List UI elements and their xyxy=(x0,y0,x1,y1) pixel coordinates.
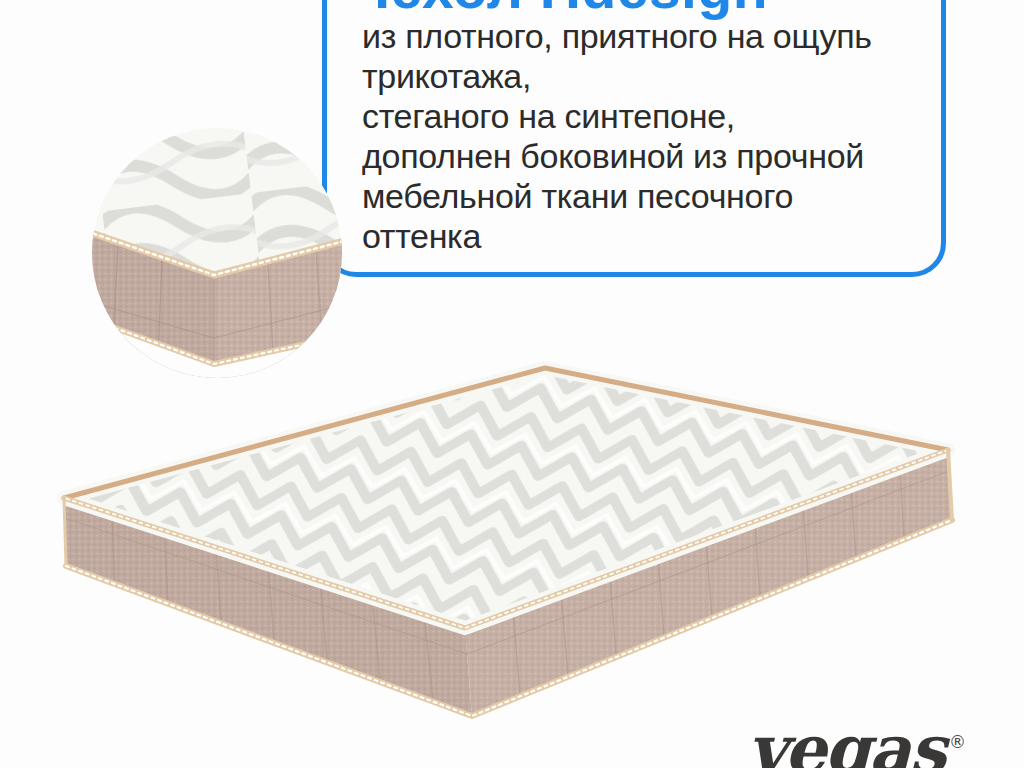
callout-text-line: стеганого на синтепоне, xyxy=(362,96,928,136)
mattress-corner-detail-image xyxy=(92,128,342,378)
callout-text-line: мебельной ткани песочного xyxy=(362,176,928,216)
mattress-side-fabric xyxy=(64,450,952,716)
mattress-piping xyxy=(64,368,952,716)
callout-text-line: дополнен боковиной из прочной xyxy=(362,136,928,176)
brand-logo: vegas ® xyxy=(748,716,944,768)
callout-text-line: оттенка xyxy=(362,216,928,256)
callout-text-line: трикотажа, xyxy=(362,56,928,96)
registered-trademark: ® xyxy=(949,732,966,752)
callout-text: из плотного, приятного на ощупь трикотаж… xyxy=(362,16,928,256)
callout-text-line: из плотного, приятного на ощупь xyxy=(362,16,928,56)
product-infographic: Чехол Hdesign из плотного, приятного на … xyxy=(0,0,1024,768)
brand-logo-text: vegas xyxy=(748,710,944,768)
mattress-top-quilt xyxy=(64,368,948,628)
callout-title: Чехол Hdesign xyxy=(350,0,768,17)
